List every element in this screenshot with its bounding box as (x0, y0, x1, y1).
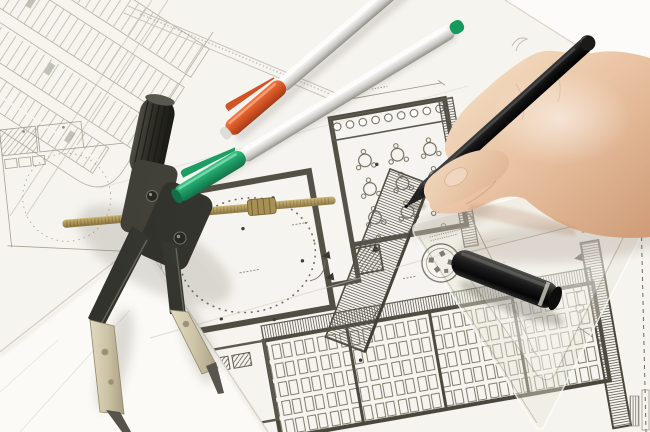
plan-annex-block2 (232, 352, 252, 368)
photo-architect-desk (0, 0, 650, 432)
